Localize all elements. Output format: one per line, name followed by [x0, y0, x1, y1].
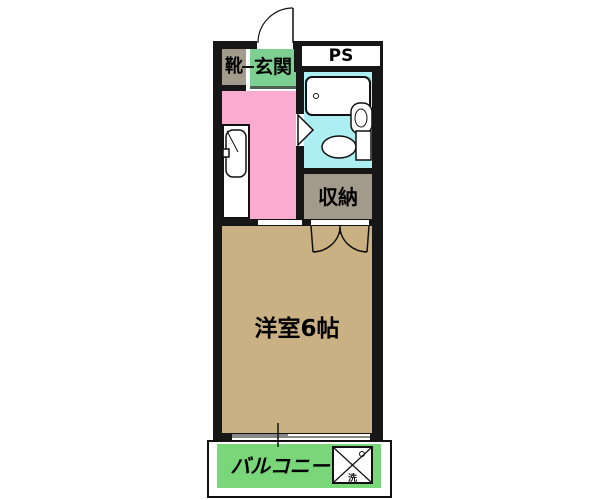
wall-left — [213, 49, 222, 441]
hallway-doorway-opening — [258, 219, 302, 226]
kitchen-sink-unit — [222, 124, 250, 219]
wall-shoe-bottom — [222, 85, 246, 91]
label-pipe-space: PS — [302, 46, 380, 66]
entrance-step-line — [250, 86, 296, 89]
label-storage: 収納 — [304, 174, 372, 219]
wall-room-top-c — [369, 219, 383, 226]
label-western-room: 洋室6帖 — [222, 226, 372, 433]
label-shoe-cabinet: 靴 — [218, 49, 250, 85]
wall-right — [372, 49, 383, 441]
bathroom-door-gap — [296, 114, 304, 146]
entrance-door-swing — [258, 8, 293, 43]
wall-room-top-b — [302, 219, 311, 226]
room-bathroom — [304, 72, 372, 168]
floor-plan-canvas: 靴 玄関 PS 収納 洋室6帖 バルコニー — [0, 0, 600, 500]
label-balcony: バルコニー — [222, 444, 338, 488]
label-entrance: 玄関 — [250, 49, 296, 86]
closet-opening — [311, 219, 369, 226]
wall-top-left — [213, 41, 257, 49]
washing-machine-pan — [332, 446, 373, 484]
wall-room-top-a — [213, 219, 258, 226]
